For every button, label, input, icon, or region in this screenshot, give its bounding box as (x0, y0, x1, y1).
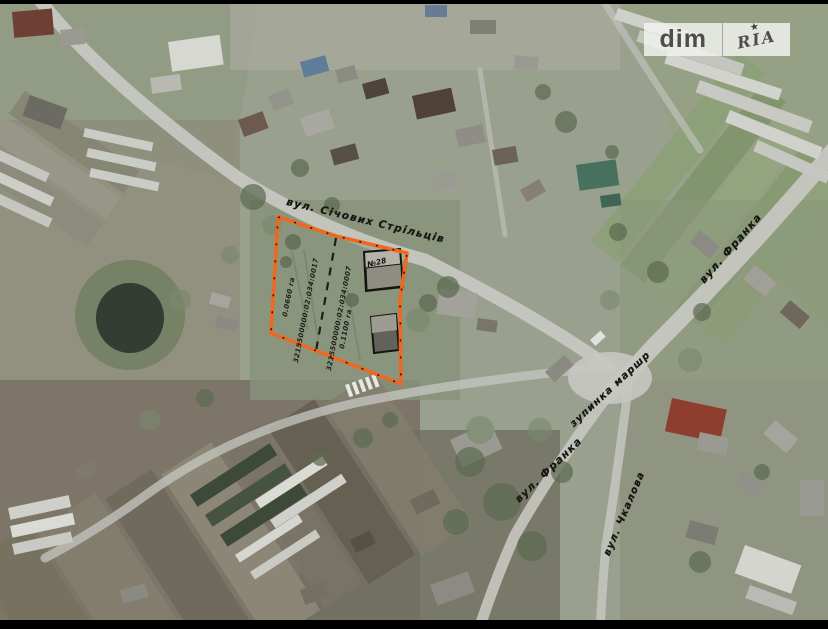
brand-dim: dim (644, 23, 722, 56)
letterbox-top (0, 0, 828, 4)
satellite-map-image: вул. Січових Стрільців вул. Франка зупин… (0, 0, 828, 629)
listing-photo-frame: вул. Січових Стрільців вул. Франка зупин… (0, 0, 828, 629)
brand-ria: ★ RIA (722, 23, 790, 56)
pond (96, 283, 164, 353)
aerial-terrain (0, 0, 828, 629)
brand-ria-text: RIA (736, 26, 778, 52)
letterbox-bottom (0, 620, 828, 629)
dim-ria-watermark: dim ★ RIA (644, 23, 790, 56)
outbuilding-footprint (371, 314, 399, 353)
